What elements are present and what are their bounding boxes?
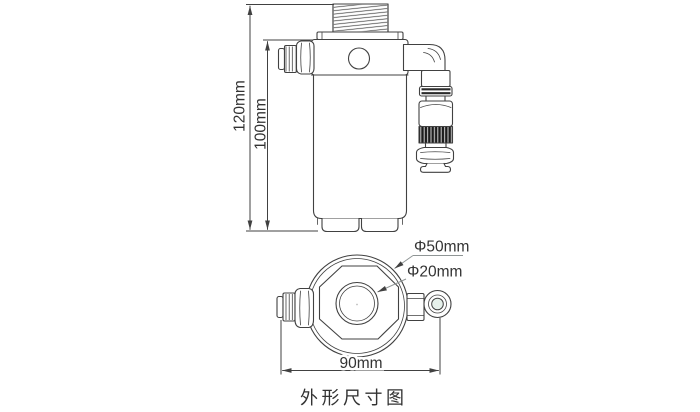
connector-tip	[421, 164, 451, 173]
right-outlet-top	[407, 291, 451, 321]
knurled-ring	[419, 127, 453, 144]
foot-tab	[362, 219, 399, 232]
eyelet-bore	[432, 298, 444, 310]
outer-circle	[306, 255, 408, 357]
port-circle-inner	[340, 286, 375, 321]
flange	[317, 32, 403, 40]
port-diameter-label: Φ20mm	[407, 264, 462, 281]
main-body	[312, 75, 409, 232]
left-push-fitting-top	[277, 289, 314, 328]
elbow-fitting	[404, 45, 446, 71]
port-circle-outer	[336, 283, 378, 325]
outlet-stub	[407, 294, 424, 321]
oring-disc	[420, 87, 453, 97]
front-view: 120mm 100mm	[232, 4, 454, 232]
hex-cap-outline	[320, 266, 399, 339]
fitting-end-cap	[279, 49, 285, 70]
outer-diameter-label: Φ50mm	[414, 239, 469, 256]
fitting-hex-nut	[297, 41, 315, 74]
left-push-fitting-front	[279, 41, 315, 74]
fitting-hex-nut	[295, 289, 314, 328]
quick-connector	[417, 71, 454, 173]
outline-dimension-drawing: 120mm 100mm	[0, 0, 700, 412]
foot-tab	[322, 219, 359, 232]
overall-height-label: 120mm	[232, 80, 249, 132]
fitting-end-cap	[277, 297, 283, 318]
drawing-caption: 外形尺寸图	[300, 388, 408, 408]
top-view: Φ50mm Φ20mm 90mm	[277, 239, 469, 375]
body-height-label: 100mm	[253, 98, 270, 150]
threaded-inlet-fitting	[333, 4, 388, 32]
thread-hatch	[334, 5, 387, 31]
dimension-drawing-page: 120mm 100mm	[0, 0, 700, 412]
center-mark	[356, 304, 358, 306]
connector-hex-nut	[417, 148, 454, 164]
overall-width-label: 90mm	[339, 355, 382, 372]
cap-block	[312, 40, 409, 76]
